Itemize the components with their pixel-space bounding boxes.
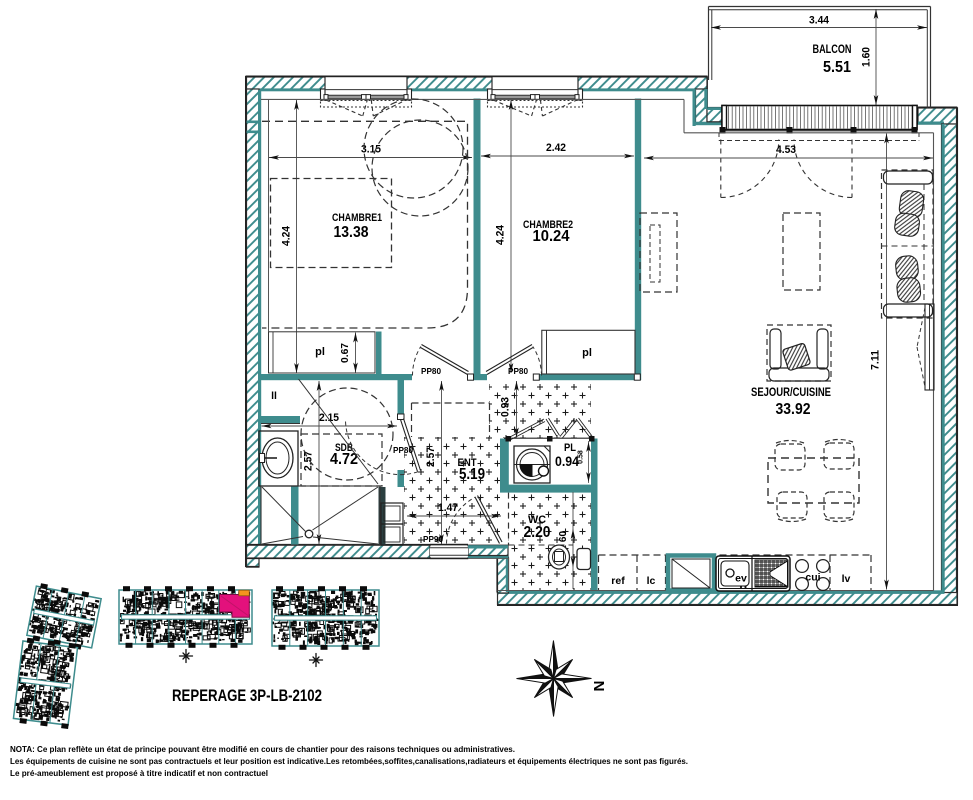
svg-text:PP90: PP90: [423, 535, 443, 544]
svg-text:1.60: 1.60: [861, 47, 873, 67]
svg-text:ref: ref: [611, 575, 625, 587]
svg-text:0.67: 0.67: [339, 343, 351, 363]
svg-text:N: N: [590, 681, 607, 692]
svg-text:ev: ev: [735, 573, 747, 585]
svg-text:lv: lv: [842, 573, 851, 585]
svg-text:0.93: 0.93: [500, 397, 512, 417]
svg-text:5.51: 5.51: [823, 59, 851, 76]
svg-text:3.44: 3.44: [809, 15, 830, 27]
svg-text:lc: lc: [647, 575, 656, 587]
svg-text:7.11: 7.11: [870, 350, 882, 370]
svg-text:NOTA: Ce plan reflète un état: NOTA: Ce plan reflète un état de princip…: [10, 744, 515, 754]
svg-text:cui: cui: [805, 572, 820, 584]
svg-text:PP80: PP80: [508, 367, 528, 376]
svg-text:Le pré-ameublement est proposé: Le pré-ameublement est proposé à titre i…: [10, 768, 268, 778]
svg-text:pl: pl: [315, 346, 325, 358]
svg-text:PP80: PP80: [421, 367, 441, 376]
svg-text:2.15: 2.15: [319, 412, 339, 424]
svg-text:2.57: 2.57: [425, 447, 437, 467]
svg-text:2.42: 2.42: [546, 142, 566, 154]
svg-text:BALCON: BALCON: [813, 44, 852, 56]
svg-text:33.92: 33.92: [776, 401, 811, 418]
svg-text:1.47: 1.47: [438, 502, 458, 514]
svg-text:CHAMBRE1: CHAMBRE1: [332, 212, 382, 224]
svg-text:REPERAGE 3P-LB-2102: REPERAGE 3P-LB-2102: [172, 686, 322, 705]
svg-text:2.57: 2.57: [303, 451, 315, 471]
svg-text:0.94: 0.94: [555, 453, 579, 469]
svg-text:ll: ll: [271, 390, 277, 402]
svg-text:4.72: 4.72: [330, 451, 358, 468]
svg-text:10.24: 10.24: [533, 228, 570, 245]
svg-text:SEJOUR/CUISINE: SEJOUR/CUISINE: [751, 387, 831, 399]
svg-text:4.24: 4.24: [495, 224, 507, 245]
svg-text:Les équipements de cuisine ne: Les équipements de cuisine ne sont pas c…: [10, 756, 688, 766]
svg-text:60: 60: [558, 531, 569, 543]
svg-text:5.19: 5.19: [459, 466, 485, 483]
svg-text:2.20: 2.20: [524, 524, 551, 541]
svg-text:pl: pl: [582, 347, 592, 359]
svg-text:PP80: PP80: [393, 446, 413, 455]
svg-text:13.38: 13.38: [334, 224, 369, 241]
svg-text:4.53: 4.53: [776, 144, 796, 156]
svg-text:0.58: 0.58: [578, 450, 585, 464]
svg-text:4.24: 4.24: [281, 225, 293, 246]
